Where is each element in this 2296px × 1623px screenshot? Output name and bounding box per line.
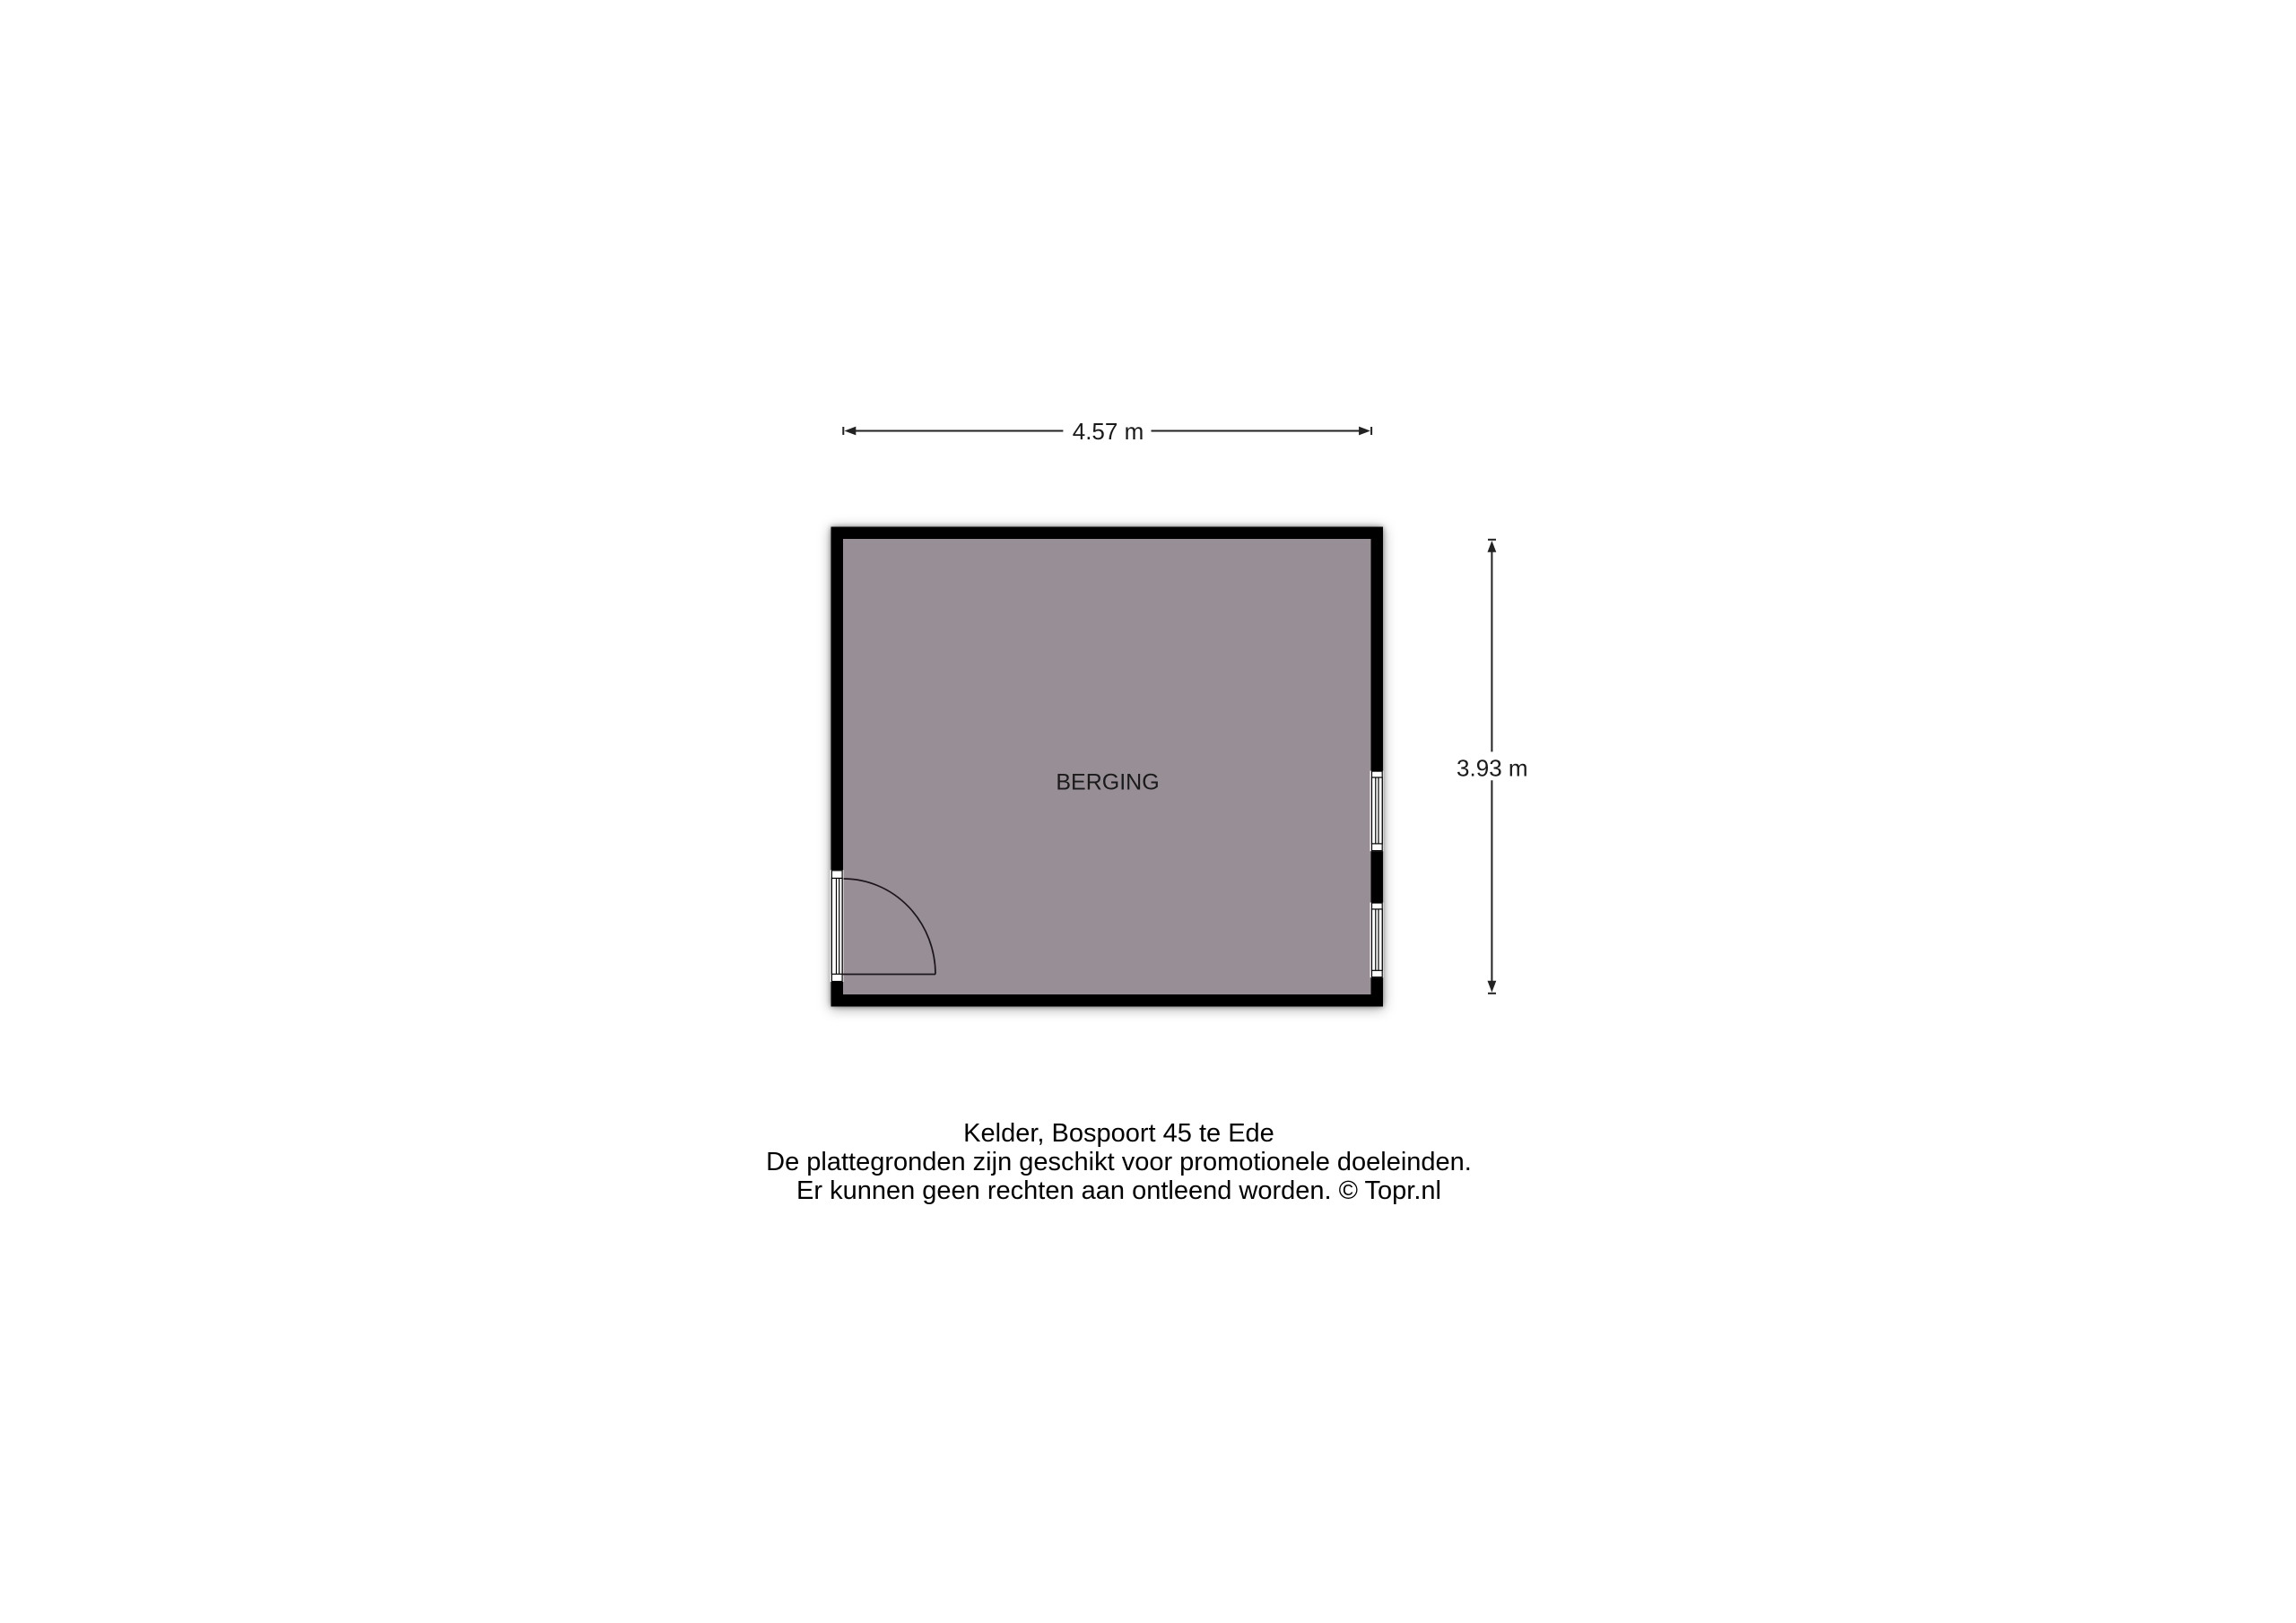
svg-text:BERGING: BERGING <box>1056 769 1159 794</box>
svg-text:Er kunnen geen rechten aan ont: Er kunnen geen rechten aan ontleend word… <box>796 1176 1441 1205</box>
svg-text:Kelder, Bospoort 45 te Ede: Kelder, Bospoort 45 te Ede <box>963 1119 1274 1148</box>
svg-text:De plattegronden zijn geschikt: De plattegronden zijn geschikt voor prom… <box>766 1148 1472 1176</box>
svg-text:4.57 m: 4.57 m <box>1073 418 1144 445</box>
svg-text:3.93 m: 3.93 m <box>1457 755 1528 782</box>
